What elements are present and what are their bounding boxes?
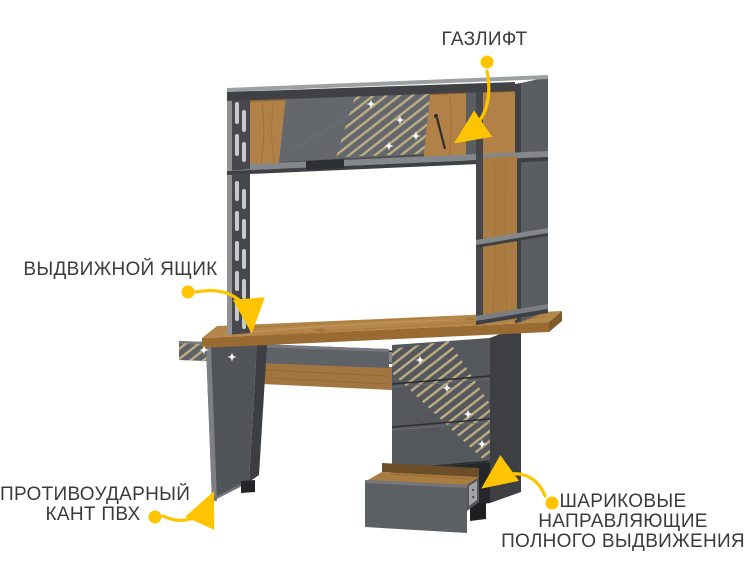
pvc-edge-label-line1: ПРОТИВОУДАРНЫЙ [0, 485, 186, 505]
hutch [227, 75, 548, 335]
hutch-right-side [521, 77, 548, 322]
drawer-pointer-dot [182, 286, 195, 299]
product-image: ГАЗЛИФТ ВЫДВИЖНОЙ ЯЩИК ПРОТИВОУДАРНЫЙ КА… [0, 0, 748, 581]
ball-slides-label-line1: ШАРИКОВЫЕ [498, 492, 748, 512]
pvc-edge-label-line2: КАНТ ПВХ [0, 505, 186, 525]
drawer-label: ВЫДВИЖНОЙ ЯЩИК [8, 260, 233, 280]
flip-up-door [279, 87, 431, 169]
ball-slides-label: ШАРИКОВЫЕ НАПРАВЛЯЮЩИЕ ПОЛНОГО ВЫДВИЖЕНИ… [498, 492, 748, 552]
leg-foot [241, 480, 255, 493]
gas-lift-label: ГАЗЛИФТ [402, 30, 567, 50]
pvc-edge-label: ПРОТИВОУДАРНЫЙ КАНТ ПВХ [0, 485, 186, 525]
ball-slides-label-line2: НАПРАВЛЯЮЩИЕ [498, 512, 748, 532]
bottom-drawer-open [365, 463, 479, 533]
left-leg-panel [206, 344, 267, 501]
gas-lift-pointer-dot [481, 56, 494, 69]
ball-slides-label-line3: ПОЛНОГО ВЫДВИЖЕНИЯ [498, 532, 748, 552]
